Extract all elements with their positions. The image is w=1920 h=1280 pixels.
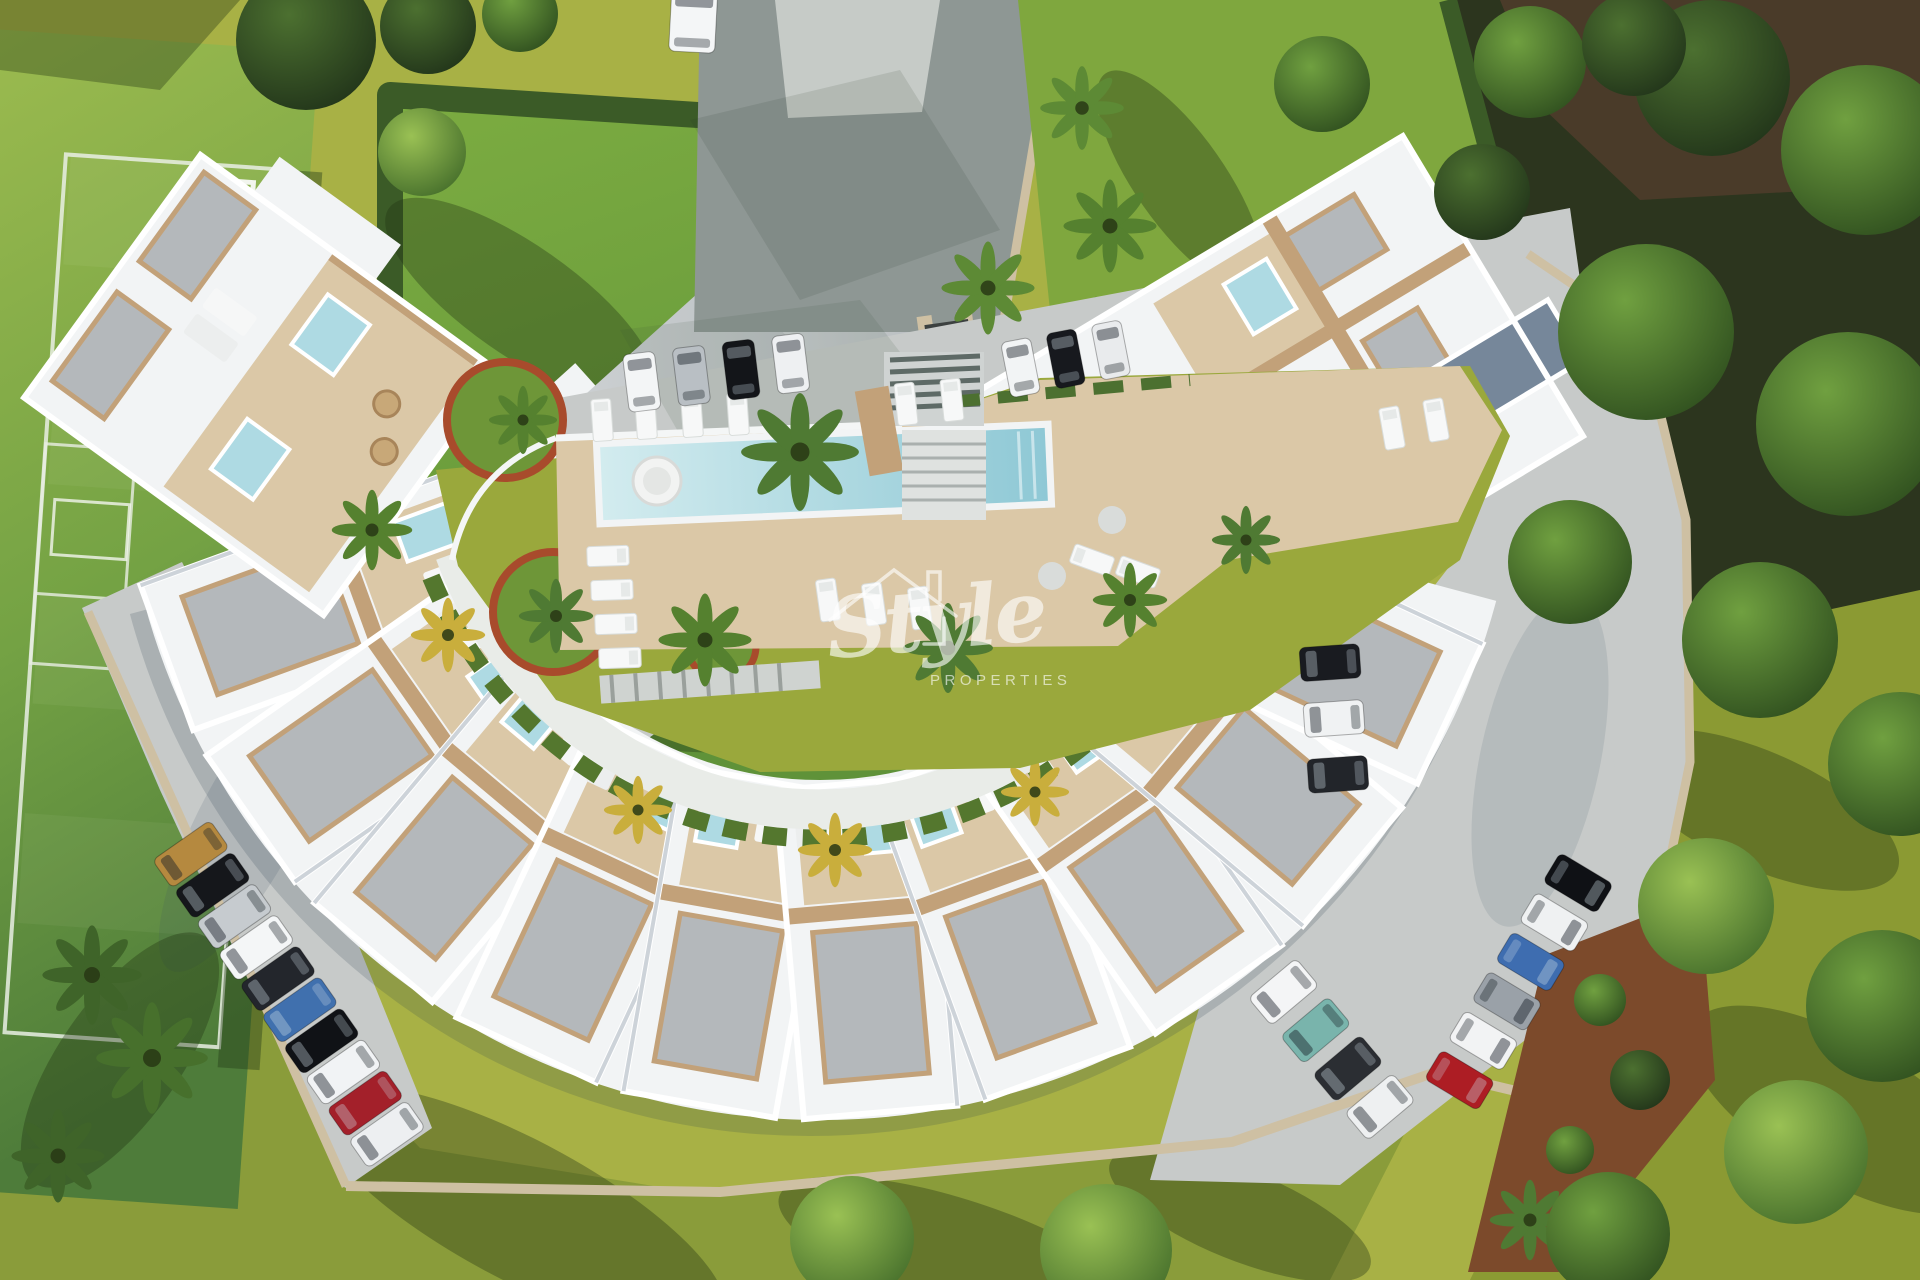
palm-tree <box>489 386 557 454</box>
car-rear-window <box>1354 761 1365 786</box>
car-rear-window <box>1350 705 1361 730</box>
palm-tree <box>1064 180 1157 273</box>
sun-lounger <box>940 378 964 422</box>
sun-lounger <box>587 545 630 566</box>
sun-lounger <box>595 613 638 634</box>
palm-tree <box>42 925 141 1024</box>
palm-tree <box>659 594 752 687</box>
stepping-stone <box>1038 562 1066 590</box>
sun-lounger <box>591 579 634 600</box>
yellow-palm <box>411 598 485 672</box>
parked-van-top <box>669 0 718 53</box>
sun-lounger <box>599 647 642 668</box>
car-rear-window <box>674 37 710 48</box>
palm-tree <box>942 242 1035 335</box>
palm-tree <box>1093 563 1167 637</box>
yellow-palm <box>798 813 872 887</box>
palm-tree <box>741 393 859 511</box>
palm-tree <box>332 490 413 571</box>
sun-lounger <box>591 398 614 441</box>
car-rear-window <box>1346 649 1357 674</box>
parking-row-right-column <box>1299 644 1369 794</box>
site-plan-svg <box>0 0 1920 1280</box>
car-windshield <box>1309 706 1322 733</box>
palm-tree <box>1040 66 1124 150</box>
aerial-site-render: Style PROPERTIES <box>0 0 1920 1280</box>
stepping-stone <box>1098 506 1126 534</box>
yellow-palm <box>604 776 672 844</box>
car-windshield <box>1305 651 1318 678</box>
palm-tree <box>1212 506 1280 574</box>
car-windshield <box>1313 762 1326 789</box>
palm-tree <box>12 1110 105 1203</box>
sun-lounger <box>894 382 918 426</box>
palm-tree <box>519 579 593 653</box>
palm-tree <box>903 603 993 693</box>
palm-tree <box>96 1002 208 1114</box>
